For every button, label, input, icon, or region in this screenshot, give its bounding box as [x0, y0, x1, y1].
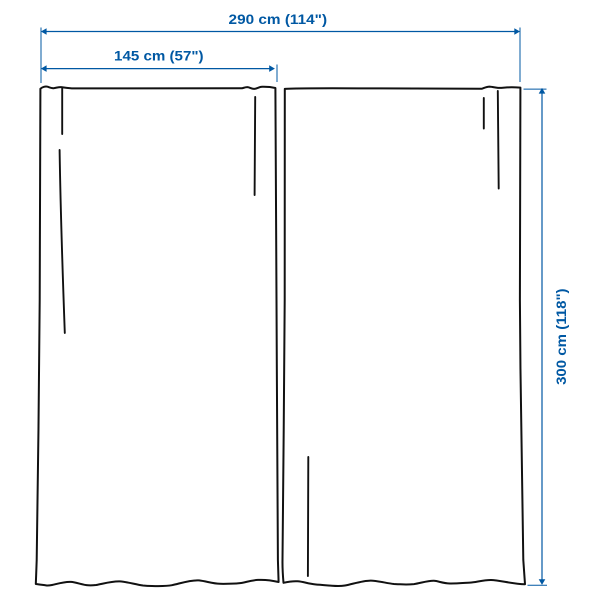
svg-text:290 cm (114"): 290 cm (114"): [229, 11, 328, 27]
svg-text:145 cm (57"): 145 cm (57"): [114, 48, 204, 64]
svg-text:300 cm (118"): 300 cm (118"): [553, 288, 569, 385]
